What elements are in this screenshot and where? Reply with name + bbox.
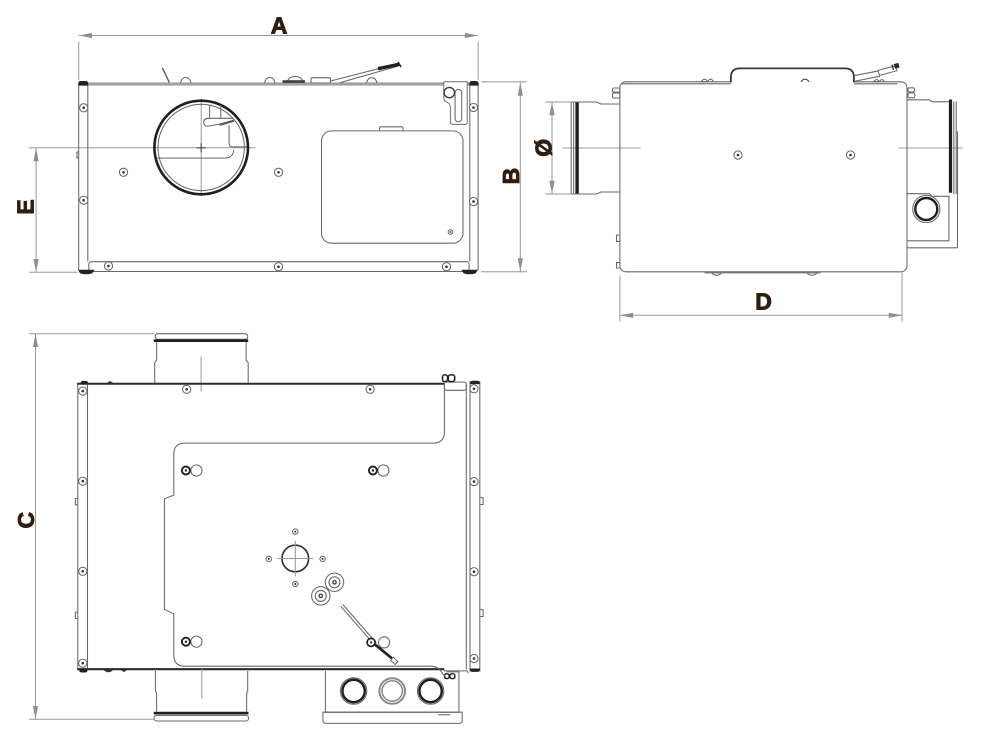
svg-text:A: A — [271, 13, 288, 39]
svg-text:Ø: Ø — [531, 139, 557, 157]
svg-text:E: E — [13, 199, 39, 214]
svg-text:C: C — [13, 512, 39, 529]
svg-text:D: D — [755, 289, 772, 315]
svg-text:B: B — [498, 168, 524, 185]
